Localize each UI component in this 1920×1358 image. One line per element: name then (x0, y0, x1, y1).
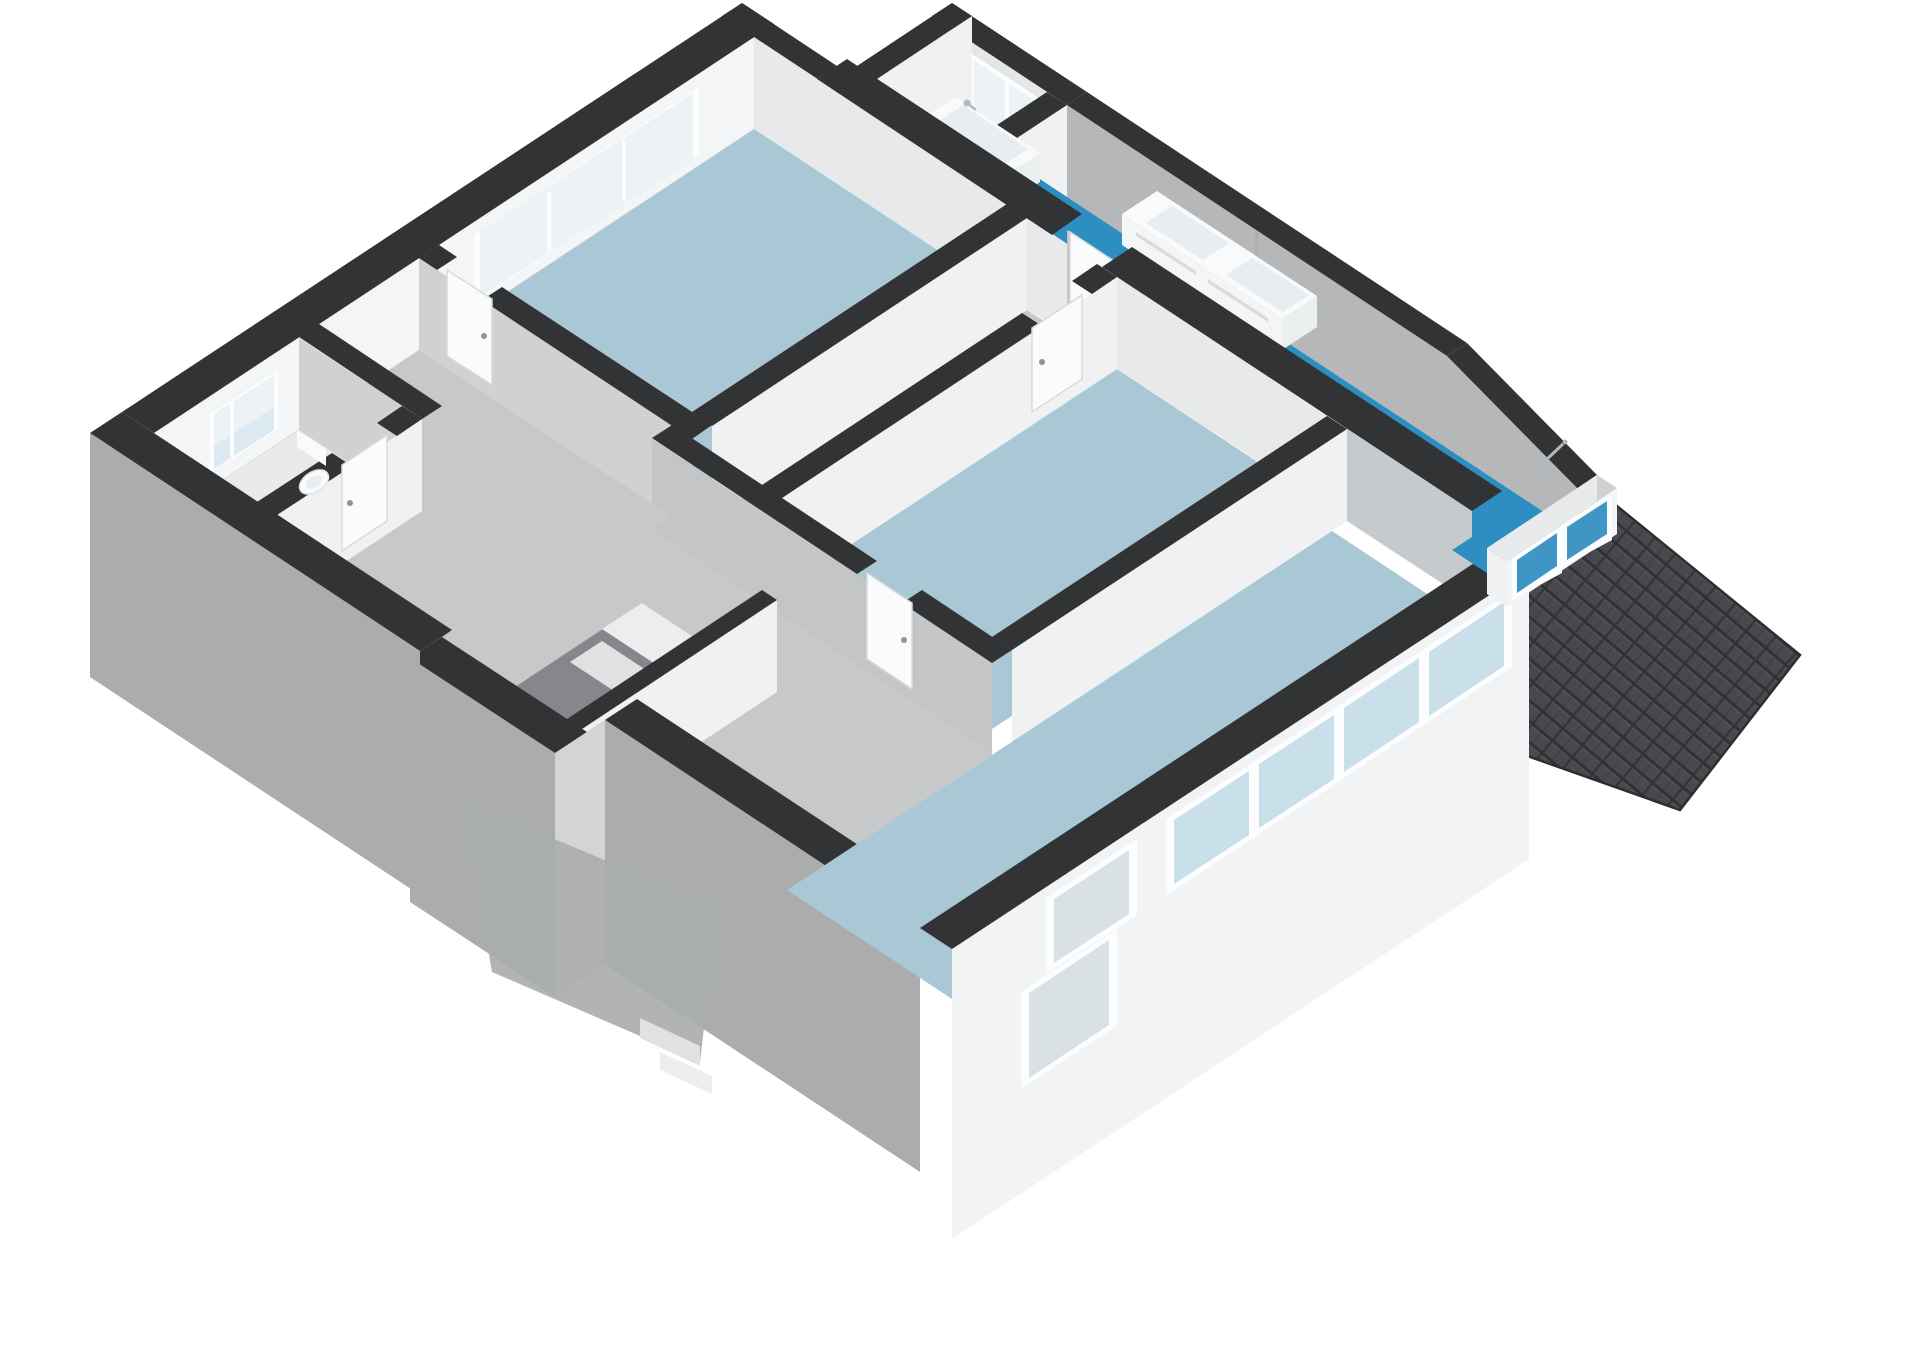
floorplan-stage (0, 0, 1920, 1358)
toilet-door-handle (347, 500, 353, 506)
bedroom1-door-handle (481, 333, 487, 339)
bedroom1-window-mullion (622, 139, 626, 202)
vanity-faucet (1276, 257, 1284, 265)
toilet-window-mullion (230, 399, 234, 459)
bedroom1-window-mullion (547, 190, 551, 253)
vanity-faucet (1196, 204, 1204, 212)
living-door-handle (901, 637, 907, 643)
floorplan-canvas (0, 0, 1920, 1358)
shower-mount (1563, 440, 1568, 445)
bedroom2-door-handle (1039, 359, 1045, 365)
